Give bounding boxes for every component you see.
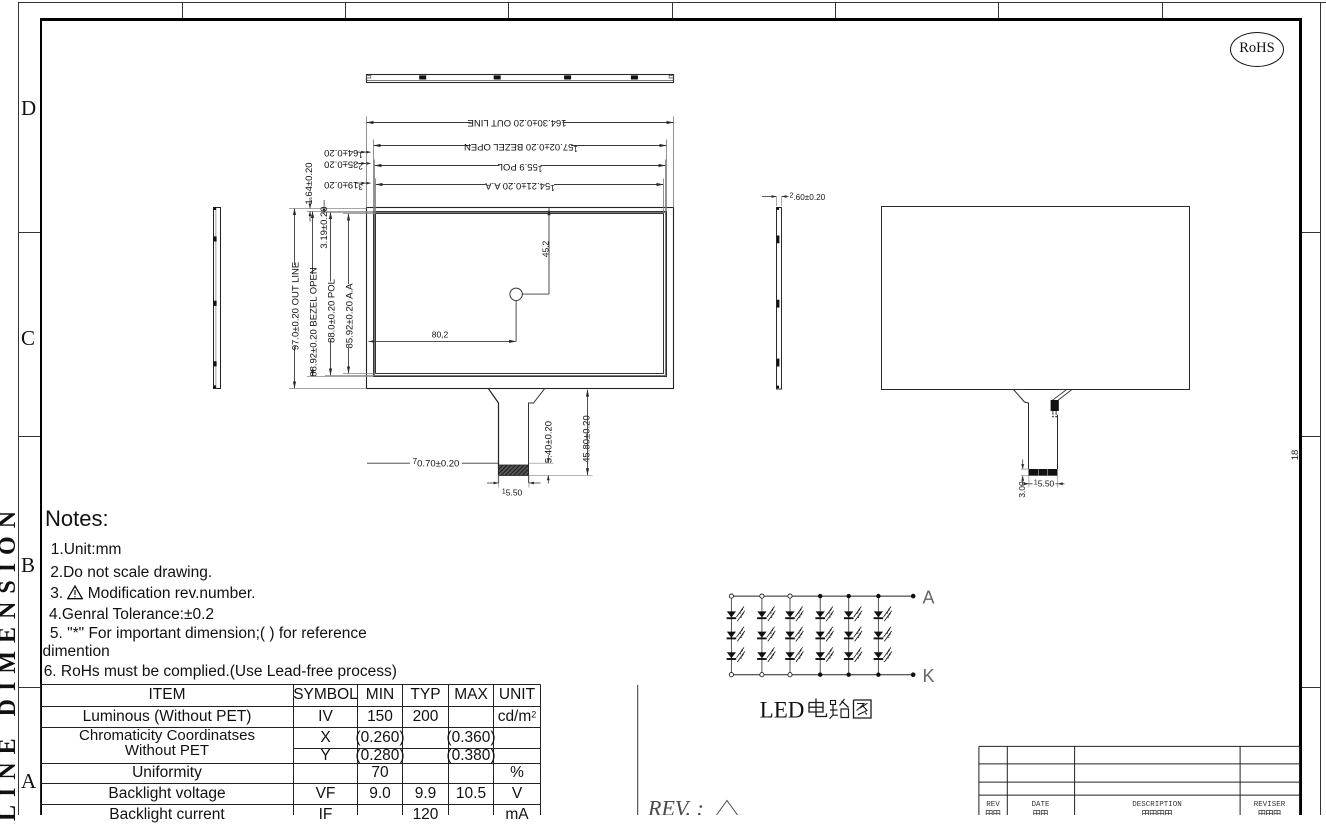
svg-text:97.0±0.20 OUT LINE: 97.0±0.20 OUT LINE [291,262,302,350]
svg-text:REV: REV [986,801,1000,809]
svg-text:18: 18 [1290,450,1301,461]
svg-text:REV. :: REV. : [647,796,704,816]
svg-text:85.92±0.20 A.A: 85.92±0.20 A.A [345,283,356,349]
svg-text:K: K [922,666,934,686]
svg-text:DATE: DATE [1031,801,1050,809]
svg-text:2.60±0.20: 2.60±0.20 [790,193,826,202]
svg-text:1.64±0.20: 1.64±0.20 [304,162,315,204]
svg-text:155.9 POL: 155.9 POL [498,162,543,174]
svg-text:15.50: 15.50 [502,486,523,497]
svg-text:319±0.20: 319±0.20 [324,179,363,191]
svg-text:164.30±0.20 OUT LINE: 164.30±0.20 OUT LINE [467,117,566,128]
svg-text:A: A [922,588,934,608]
svg-text:15.50: 15.50 [1034,477,1055,488]
svg-text:70.70±0.20: 70.70±0.20 [413,457,460,469]
svg-text:45.80±0.20: 45.80±0.20 [582,415,593,462]
svg-text:DESCRIPTION: DESCRIPTION [1132,801,1182,809]
svg-text:88.92±0.20 BEZEL OPEN: 88.92±0.20 BEZEL OPEN [309,267,320,377]
svg-text:REVISER: REVISER [1254,801,1286,809]
svg-text:164±0.20: 164±0.20 [324,148,363,160]
svg-text:154.21±0.20 A.A: 154.21±0.20 A.A [485,181,555,193]
svg-text:235±0.20: 235±0.20 [324,159,363,171]
svg-text:5.40±0.20: 5.40±0.20 [544,421,555,463]
svg-text:157.02±0.20 BEZEL OPEN: 157.02±0.20 BEZEL OPEN [464,142,578,154]
svg-text:LED: LED [760,698,805,723]
svg-text:88.0±0.20 POL: 88.0±0.20 POL [327,279,338,343]
svg-text:80,2: 80,2 [432,330,449,340]
svg-text:45,2: 45,2 [541,240,551,257]
